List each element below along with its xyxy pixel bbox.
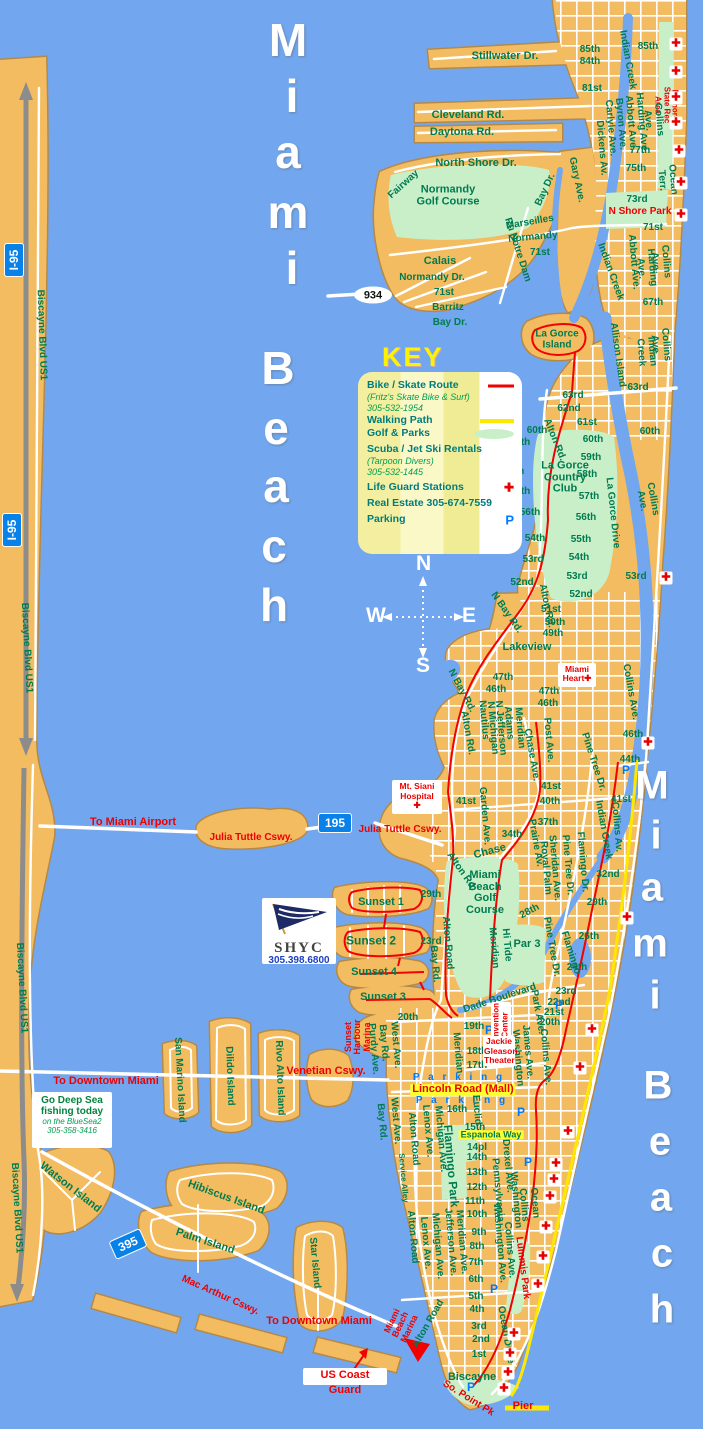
legend-golf-parks: Golf & Parks [367,427,514,440]
legend-bike-phone: 305-532-1954 [367,403,514,414]
map-artwork [0,0,703,1429]
compass-rose: N E S W [376,566,470,668]
jackie-gleason-theater: Jackie Gleason Theater [483,1036,515,1066]
golf-parks-sample-icon [474,429,514,439]
parking-sample-icon: P [505,513,514,526]
miami-heart-hospital: Miami Heart✚ [558,663,596,687]
legend-scuba-phone: 305-532-1445 [367,467,514,478]
legend-bike-route: Bike / Skate Route [367,379,514,392]
key-title: KEY [382,342,444,373]
legend-real-estate: Real Estate 305-674-7559 [367,497,514,510]
hospital-cross-icon: ✚ [584,673,591,683]
walking-path-sample-icon [480,419,514,423]
shyc-flag-icon [265,900,333,936]
fishing-ad-line3: on the BlueSea2 [33,1117,111,1126]
legend-walking-path: Walking Path [367,414,514,427]
legend-scuba-vendor: (Tarpoon Divers) [367,456,514,467]
compass-south: S [416,654,430,678]
legend-lifeguard: Life Guard Stations✚ [367,481,514,494]
hospital-cross-icon: ✚ [413,800,420,810]
shyc-yacht-club-ad: SHYC 305.398.6800 [262,898,336,964]
lifeguard-sample-icon: ✚ [504,481,514,494]
map-legend: Bike / Skate Route (Fritz's Skate Bike &… [358,372,522,554]
legend-scuba: Scuba / Jet Ski Rentals [367,443,514,456]
fishing-ad: Go Deep Sea fishing today on the BlueSea… [32,1092,112,1148]
legend-bike-vendor: (Fritz's Skate Bike & Surf) [367,392,514,403]
fishing-ad-line2: fishing today [33,1106,111,1117]
compass-north: N [416,552,431,576]
mt-siani-hospital: Mt. Siani Hospital✚ [392,780,442,814]
fishing-ad-phone: 305-358-3416 [33,1126,111,1135]
compass-west: W [366,604,386,628]
shyc-phone: 305.398.6800 [264,955,334,966]
compass-east: E [462,604,476,628]
fishing-ad-line1: Go Deep Sea [33,1095,111,1106]
miami-beach-map: MiamiBeachMiamiBeach Stillwater Dr.85th8… [0,0,703,1429]
bike-route-sample-icon [488,384,514,387]
legend-parking: ParkingP [367,513,514,526]
us-coast-guard-label: US Coast Guard [303,1368,387,1385]
shyc-name: SHYC [264,941,334,955]
